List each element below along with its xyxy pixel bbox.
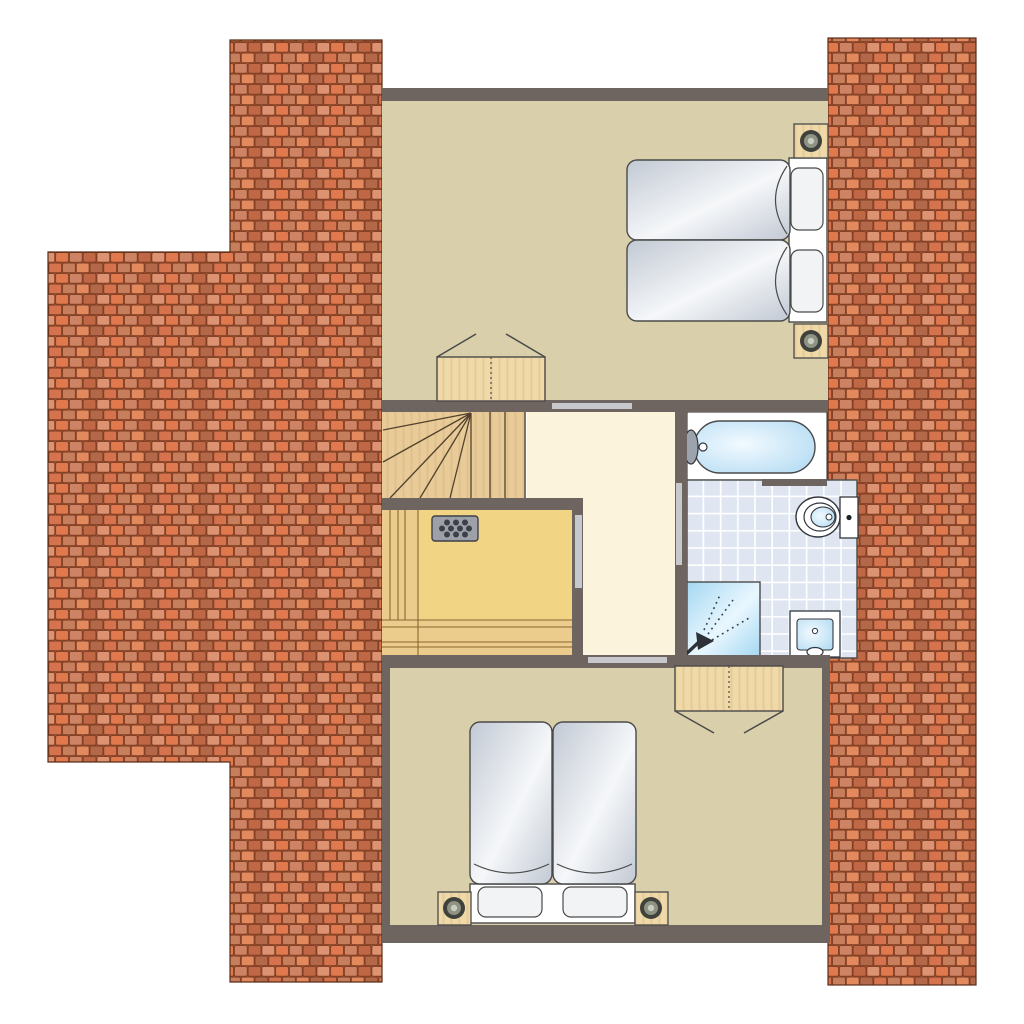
pillow [791,250,823,312]
room-sauna [382,510,572,655]
pillow [563,887,627,917]
pillow [478,887,542,917]
mattress [627,160,790,240]
twin-beds-bottom [470,722,636,923]
door-sauna [575,515,582,588]
pillow [791,168,823,230]
door-bedroom-top [552,403,632,409]
wall-bedroom-bottom-west [382,655,390,943]
door-bathroom [676,483,682,565]
flush-button-icon [846,515,851,520]
bedside-lamp-bottom-2 [635,892,668,925]
floor-plan [0,0,1024,1024]
roof-left [48,40,382,982]
wall-bedroom-bottom-east [822,655,830,943]
sauna-heater-icon [432,516,478,541]
door-bedroom-bottom [588,657,667,663]
roof-left-shape [48,40,382,982]
bedside-lamp-top-1 [794,124,828,158]
washbasin-icon [790,611,840,657]
staircase [382,412,526,498]
bedside-lamp-top-2 [794,324,828,358]
bathtub-icon [684,421,815,473]
bedside-lamp-bottom-1 [438,892,471,925]
twin-beds-top [627,158,827,322]
wall-sauna-north [382,498,583,510]
wall-bathtub-stub [762,479,827,486]
wall-top [382,88,828,101]
shower-icon [685,582,760,656]
toilet-icon [796,497,858,538]
floor-plan-canvas [0,0,1024,1024]
wall-bottom [382,925,830,943]
mattress [553,722,636,884]
mattress [470,722,552,884]
mattress [627,240,790,321]
sauna-bench-bottom [382,620,572,655]
